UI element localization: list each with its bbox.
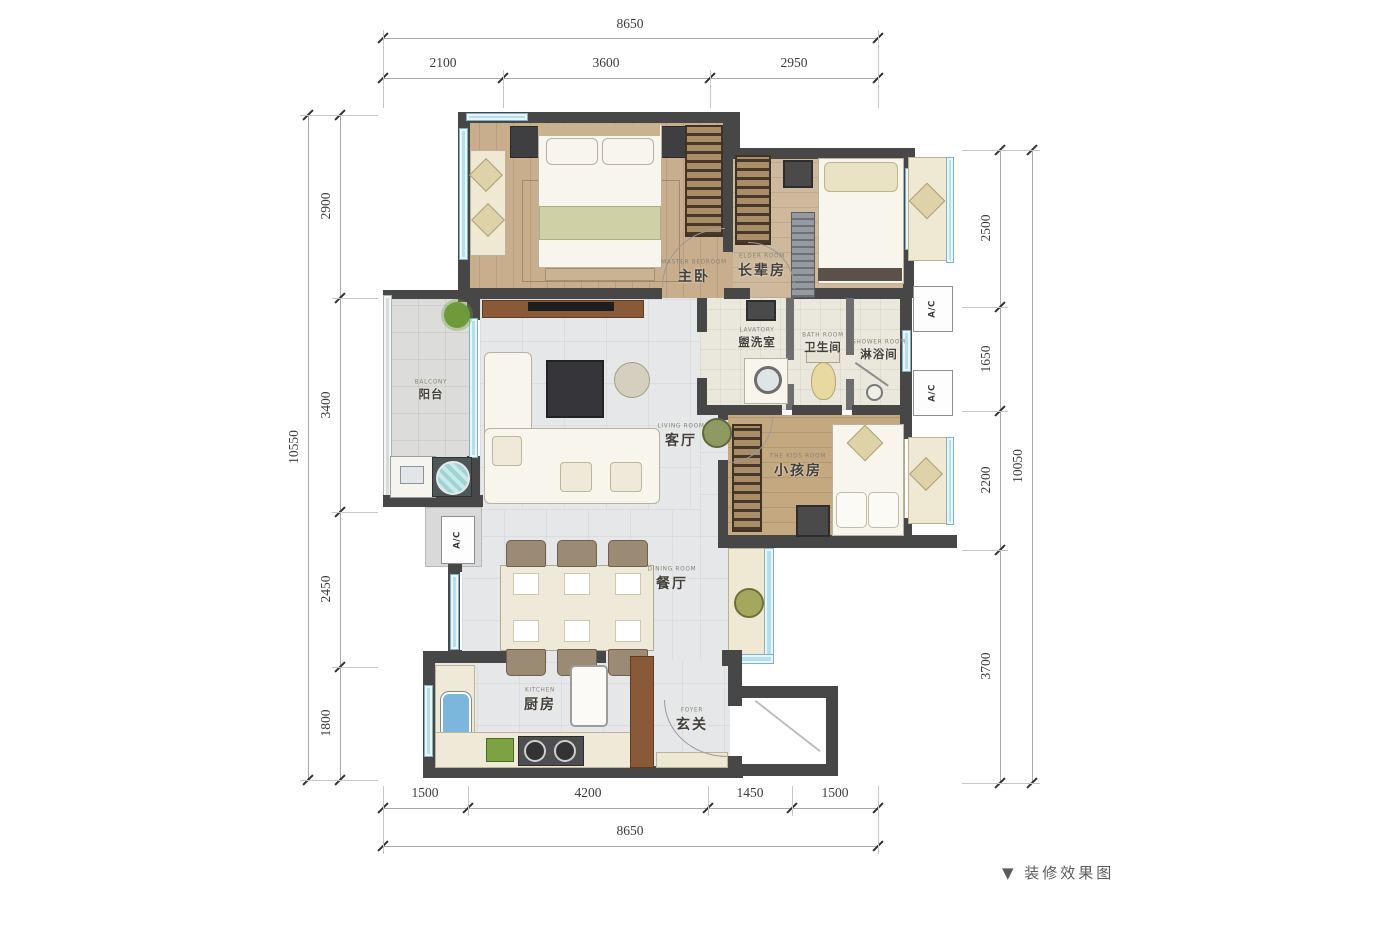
wall [697,298,707,332]
dim-label: 2200 [978,464,994,497]
nightstand [510,126,540,158]
wall [742,764,838,776]
place-setting [615,573,641,595]
room-label-shower: SHOWER ROOM 淋浴间 [842,338,917,362]
veggie-decor [486,738,514,762]
room-label-living: LIVING ROOM 客厅 [648,422,713,450]
bed-bench [545,268,655,281]
shower-head-icon [866,384,883,401]
ext-line [962,307,1008,308]
sofa-pillow [560,462,592,492]
plant-icon [444,302,470,328]
master-wardrobe [685,125,723,237]
dim-line-top-total [383,38,878,39]
dim-line-top-segments [383,78,878,79]
ac-label: A/C [453,531,463,548]
bed-pillow [824,162,898,192]
dining-chair [506,540,546,567]
dim-label: 2450 [318,573,334,606]
window [424,685,433,757]
window [450,574,459,650]
ac-label: A/C [928,300,938,317]
room-label-lavatory: LAVATORY 盥洗室 [733,326,782,350]
dim-label: 2950 [778,55,811,71]
dining-chair [608,540,648,567]
room-label-kitchen: KITCHEN 厨房 [519,686,561,714]
wall [728,660,742,706]
toilet-icon [811,362,836,400]
ext-line [878,786,879,854]
place-setting [564,573,590,595]
fridge-icon [570,665,608,727]
coffee-table [546,360,604,418]
wall [724,288,750,299]
ext-line [332,298,378,299]
dim-label: 3600 [590,55,623,71]
ext-line [332,512,378,513]
ext-line [792,786,793,816]
room-label-balcony: BALCONY 阳台 [408,378,453,402]
tall-cabinet [630,656,654,768]
balcony-door-window [469,318,478,458]
caption: ▼ 装修效果图 [1002,862,1114,883]
cabinet [783,160,813,188]
ext-line [468,786,469,816]
place-setting [513,620,539,642]
ext-line [300,780,378,781]
bed-pillow [546,138,598,165]
room-label-dining: DINING ROOM 餐厅 [638,565,706,593]
dim-line-bottom-total [383,846,878,847]
burner-icon [524,740,546,762]
window [764,548,774,664]
window [946,157,954,263]
bed-headboard [538,124,660,136]
dim-line-bottom-segments [383,808,878,809]
wall [826,686,838,776]
ext-line [878,30,879,108]
dim-label: 3700 [978,650,994,683]
dim-label: 10550 [286,427,302,467]
wall [722,650,742,666]
ext-line [503,70,504,108]
place-setting [513,573,539,595]
window [459,128,468,260]
ext-line [962,550,1008,551]
wall [792,405,842,415]
room-label-master: MASTER BEDROOM 主卧 [648,258,739,286]
wall [742,686,838,698]
ext-line [962,783,1040,784]
dim-label: 3400 [318,389,334,422]
dim-line-right-total [1032,150,1033,783]
place-setting [564,620,590,642]
dim-label: 2100 [427,55,460,71]
burner-icon [554,740,576,762]
wall [383,290,473,299]
side-table [614,362,650,398]
washer-drum-icon [754,366,782,394]
room-label-kids: THE KIDS ROOM 小孩房 [759,452,837,480]
dim-label: 2500 [978,212,994,245]
decor-icon [734,588,764,618]
sofa-pillow [492,436,522,466]
dim-line-right-segments [1000,150,1001,783]
sofa-pillow [610,462,642,492]
basin-icon [400,466,424,484]
bed-pillow [602,138,654,165]
tv-icon [528,302,614,311]
ext-line [300,115,378,116]
ext-line [962,150,1040,151]
ext-line [708,786,709,816]
window [946,437,954,525]
ext-line [710,70,711,108]
dim-label: 1500 [409,785,442,801]
nightstand [796,505,830,537]
dim-line-left-segments [340,115,341,780]
ac-platform: A/C [913,370,953,416]
bed-bench [818,268,902,281]
dim-label: 8650 [614,16,647,32]
wall [786,298,794,360]
dim-label: 1450 [734,785,767,801]
dim-label: 1500 [819,785,852,801]
bed-pillow [836,492,867,528]
ext-line [383,30,384,108]
ac-platform: A/C [913,286,953,332]
dim-label: 2900 [318,190,334,223]
wall [458,288,662,299]
ac-platform: A/C [441,516,475,564]
bed-pillow [868,492,899,528]
washing-machine-icon [436,461,470,495]
dining-chair [506,649,546,676]
room-label-foyer: FOYER 玄关 [676,706,708,734]
ac-label: A/C [928,384,938,401]
dim-line-left-total [308,115,309,780]
ext-line [332,667,378,668]
bed-throw [539,206,661,240]
dim-label: 10050 [1010,446,1026,486]
dim-label: 8650 [614,823,647,839]
wall [852,405,905,415]
wall [700,405,782,415]
window [466,113,528,121]
cabinet [746,300,776,321]
ext-line [962,411,1008,412]
nightstand [658,126,688,158]
elder-wardrobe [735,155,771,245]
ext-line [383,786,384,854]
place-setting [615,620,641,642]
dining-chair [557,540,597,567]
wall [718,535,957,548]
floorplan-canvas: A/C A/C A/C [0,0,1400,933]
wall [728,756,742,772]
entry-door-swing-line [755,700,821,752]
room-label-elder: ELDER ROOM 长辈房 [730,252,794,280]
dim-label: 1800 [318,707,334,740]
wall [423,651,515,663]
wall [718,460,728,545]
dim-label: 4200 [572,785,605,801]
dim-label: 1650 [978,343,994,376]
